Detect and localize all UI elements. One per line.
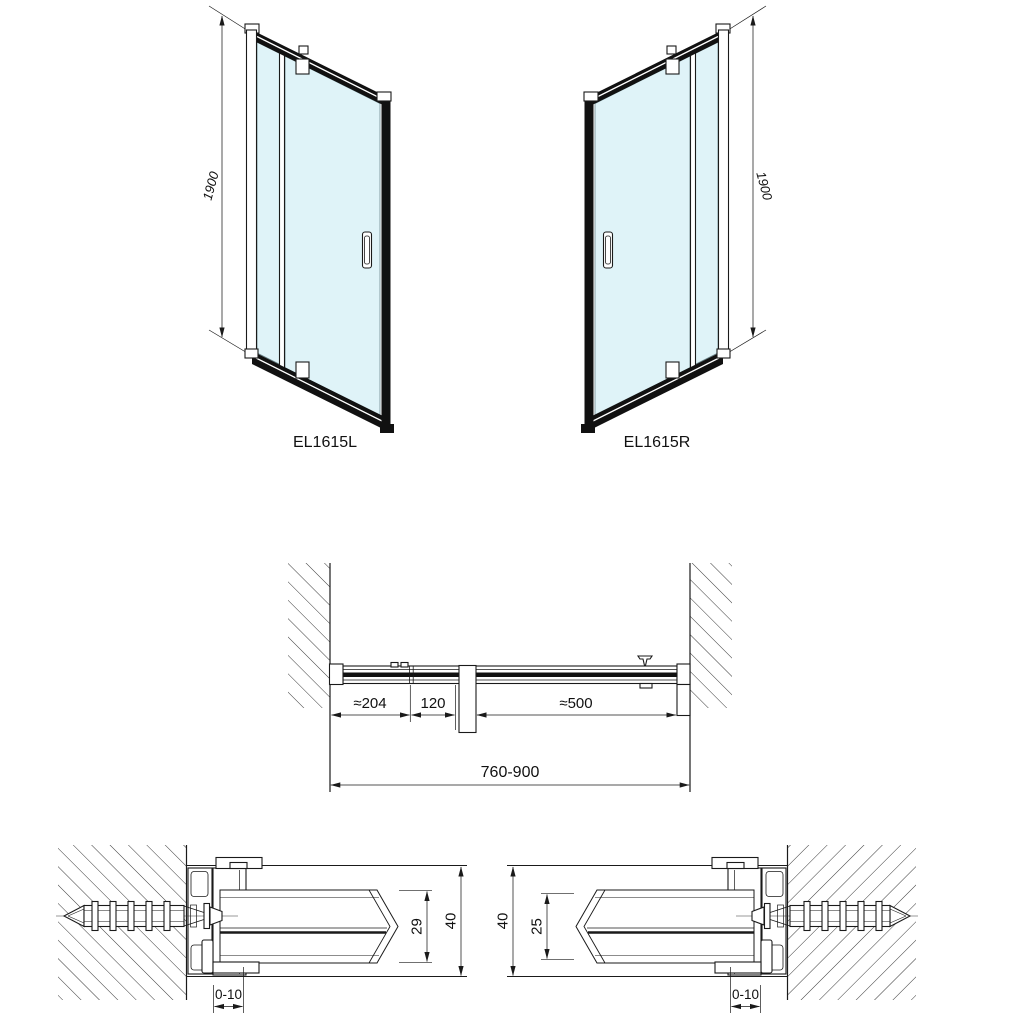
model-label-left: EL1615L xyxy=(293,434,357,451)
dim-fixed-segment: ≈204 xyxy=(353,695,386,712)
shower-door-technical-drawing: 1900 EL1615L 1900 EL1615R xyxy=(0,0,1024,1024)
plan-pivot-block xyxy=(459,666,476,733)
dim-overlap-segment: 120 xyxy=(420,695,445,712)
right-wall-hatch xyxy=(690,563,732,708)
detail-section-left: 29 40 0-10 xyxy=(56,845,467,1013)
left-wall-hatch xyxy=(288,563,330,708)
plan-view: ≈204 120 ≈500 760-900 xyxy=(288,563,732,792)
model-label-right: EL1615R xyxy=(624,434,691,451)
height-dimension-left: 1900 xyxy=(200,169,222,202)
plan-screw-icon xyxy=(638,656,652,666)
technical-drawing-page: 1900 EL1615L 1900 EL1615R xyxy=(0,0,1024,1024)
dim-adjustment-right: 0-10 xyxy=(732,987,759,1002)
height-dimension-right: 1900 xyxy=(753,170,775,203)
detail-section-right: 25 40 0-10 xyxy=(495,845,919,1013)
plan-right-wall-bracket xyxy=(677,664,690,685)
dim-door-segment: ≈500 xyxy=(559,695,592,712)
dim-inner-depth-right: 25 xyxy=(529,918,546,935)
dim-overall-width: 760-900 xyxy=(481,764,540,781)
front-view-right-door: 1900 EL1615R xyxy=(581,6,776,451)
dim-outer-depth-left: 40 xyxy=(443,913,460,930)
dim-outer-depth-right: 40 xyxy=(495,913,512,930)
plan-dimensions: ≈204 120 ≈500 760-900 xyxy=(331,685,689,785)
front-view-left-door: 1900 EL1615L xyxy=(200,6,394,451)
dim-inner-depth-left: 29 xyxy=(409,918,426,935)
plan-left-wall-bracket xyxy=(330,664,344,685)
dim-adjustment-left: 0-10 xyxy=(215,987,242,1002)
